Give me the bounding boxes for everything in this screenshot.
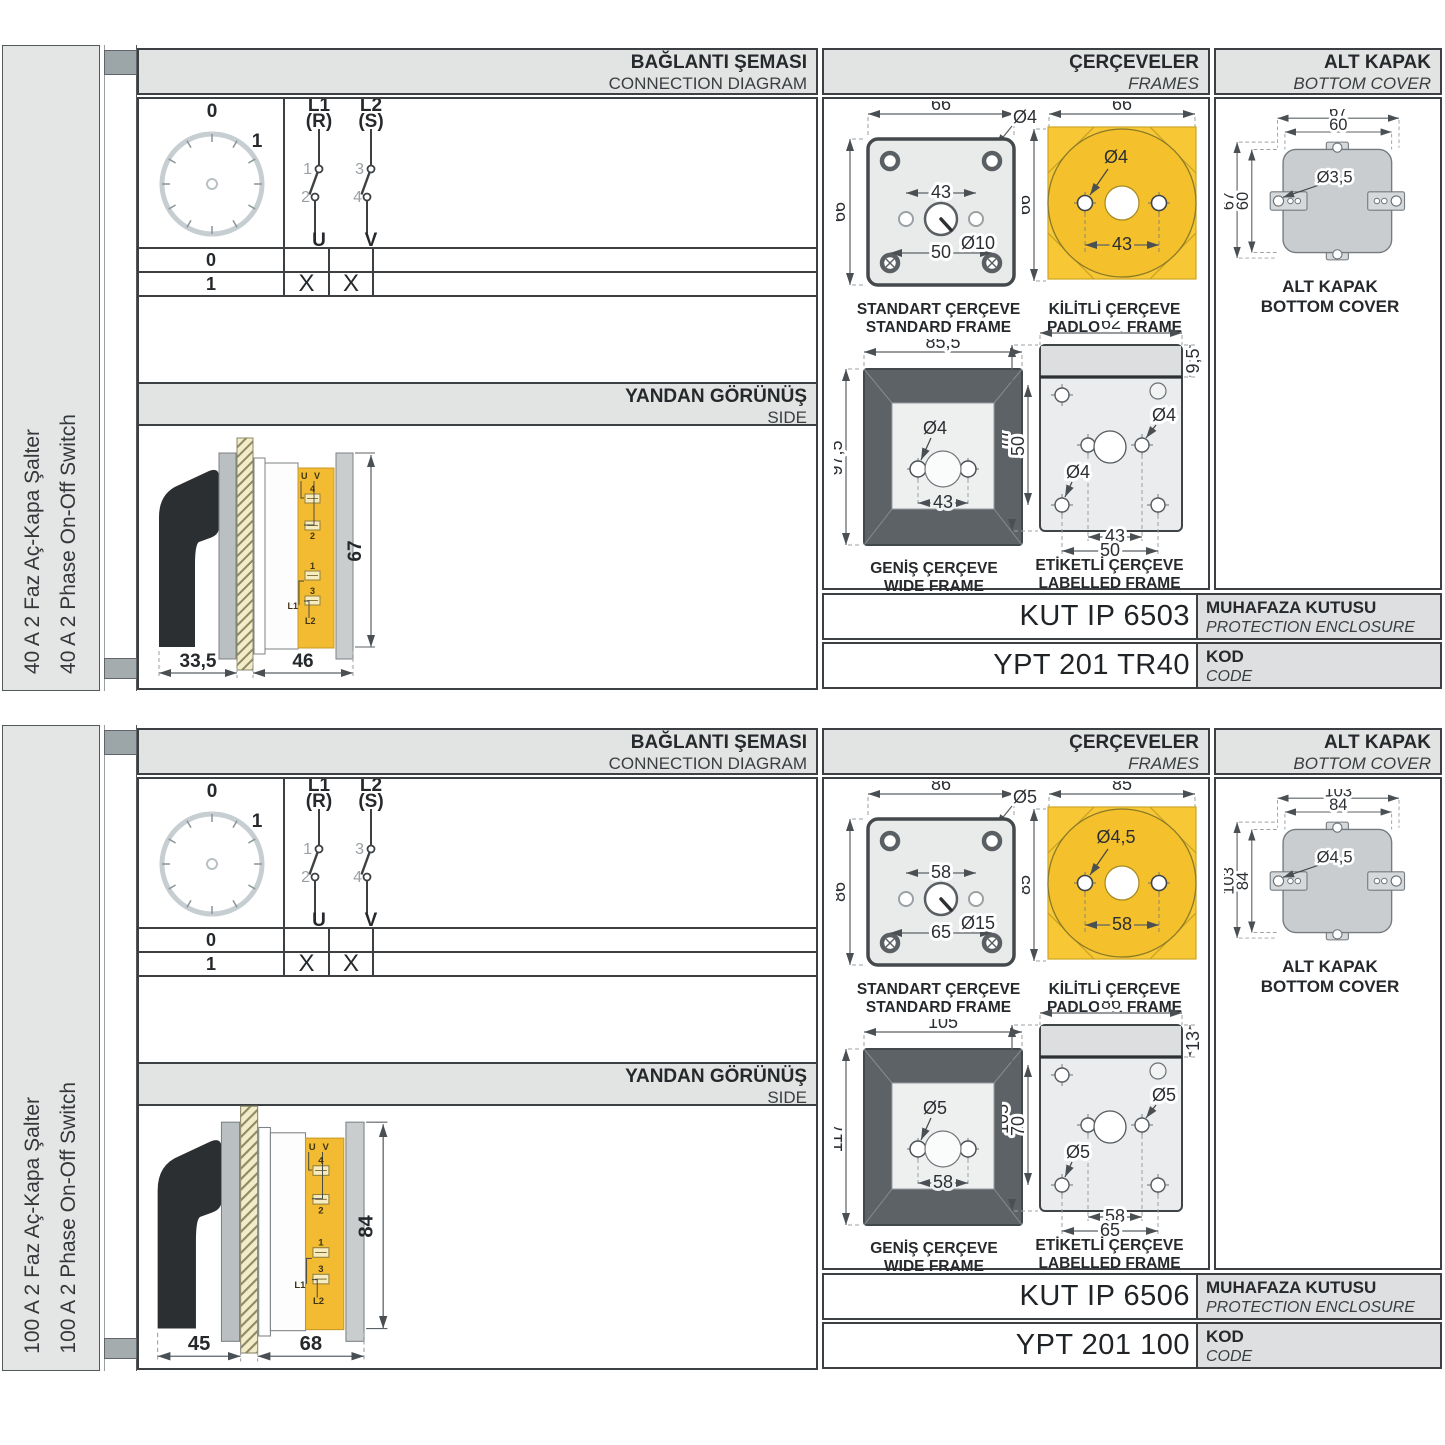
- terminal-3: 3: [310, 586, 315, 596]
- dim-height: 67: [345, 540, 366, 561]
- dim-hole-left: Ø4: [1066, 462, 1090, 482]
- table-row: 1 X X: [139, 273, 816, 297]
- dim-width: 66: [931, 101, 951, 114]
- terminal-3: 3: [318, 1264, 323, 1275]
- dial-position-1: 1: [252, 131, 263, 152]
- connection-diagram-header: BAĞLANTI ŞEMASI CONNECTION DIAGRAM: [137, 728, 818, 775]
- dim-body-depth: 46: [292, 651, 313, 672]
- labelled-frame-title: ETİKETLİ ÇERÇEVE LABELLED FRAME: [1007, 557, 1212, 594]
- bottom-cover-title: ALT KAPAK BOTTOM COVER: [1216, 277, 1444, 317]
- dim-hole-spacing: 43: [933, 492, 953, 512]
- product-name-en: 100 A 2 Phase On-Off Switch: [57, 1082, 81, 1354]
- frame-title-tr: GENİŞ ÇERÇEVE: [834, 560, 1034, 578]
- product-code: YPT 201 100: [1016, 1329, 1190, 1362]
- frame-title-en: LABELLED FRAME: [1007, 575, 1212, 593]
- dim-hole-spacing: 58: [1112, 914, 1132, 934]
- pole1-phase-label: (R): [306, 791, 332, 812]
- enclosure-code: KUT IP 6503: [1020, 600, 1190, 633]
- terminal-v: V: [314, 471, 320, 481]
- spine-tab-bottom: [104, 1338, 137, 1359]
- dial-position-0: 0: [207, 101, 218, 122]
- connection-diagram-panel: 0 1 L1 (R) L2 (S) 1 2 3 4 U V 0: [137, 97, 818, 690]
- product-label-column: 40 A 2 Faz Aç-Kapa Şalter 40 A 2 Phase O…: [2, 45, 100, 691]
- code-label-tr: KOD: [1206, 1326, 1440, 1347]
- header-title-tr: ALT KAPAK: [1216, 732, 1431, 754]
- dim-strip: 9,5: [1183, 348, 1203, 373]
- dim-height: 84: [356, 1214, 378, 1237]
- dial-position-0: 0: [207, 781, 218, 802]
- product-name-tr: 100 A 2 Faz Aç-Kapa Şalter: [21, 1097, 45, 1354]
- enclosure-code: KUT IP 6506: [1020, 1280, 1190, 1313]
- pole1-terminal-top: 1: [303, 161, 312, 178]
- bottom-cover-panel: 103 84 103 84 Ø4,5 ALT KAPAK BOTTOM COVE…: [1214, 777, 1442, 1270]
- enclosure-code-cell: KUT IP 6506: [822, 1273, 1198, 1320]
- diagram-area: 0 1 L1 (R) L2 (S) 1 2 3 4 U V: [139, 779, 816, 929]
- contacts-diagram: L1 (R) L2 (S) 1 2 3 4 U V: [285, 99, 585, 249]
- state-cell: 1: [139, 953, 285, 975]
- dim-height-inner: 84: [1233, 872, 1252, 890]
- contact-u-cell: [285, 249, 330, 271]
- pole2-terminal-bottom: 4: [353, 189, 362, 206]
- dim-center-hole: Ø10: [961, 233, 995, 253]
- standard-frame-drawing: 66 66 Ø4 43 Ø10 50: [836, 101, 1041, 299]
- empty-cell: [374, 273, 816, 295]
- dim-inner-height: 70: [1008, 1116, 1028, 1136]
- contact-u-cell: X: [285, 273, 330, 295]
- empty-cell: [374, 929, 816, 951]
- dim-hole: Ø3,5: [1317, 168, 1353, 187]
- dim-handle-depth: 45: [188, 1333, 210, 1355]
- contact-v-cell: X: [330, 273, 374, 295]
- code-label-cell: KOD CODE: [1196, 1322, 1442, 1369]
- dim-height: 97,5: [834, 440, 846, 475]
- pole1-terminal-bottom: 2: [301, 189, 310, 206]
- state-cell: 0: [139, 929, 285, 951]
- terminal-2: 2: [318, 1206, 323, 1217]
- dim-width: 85,5: [925, 339, 960, 352]
- product-code-cell: YPT 201 100: [822, 1322, 1198, 1369]
- pole2-output-label: V: [365, 910, 378, 929]
- dim-width: 85: [1112, 781, 1132, 794]
- connection-diagram-header: BAĞLANTI ŞEMASI CONNECTION DIAGRAM: [137, 48, 818, 95]
- state-cell: 1: [139, 273, 285, 295]
- binder-spine: [104, 45, 137, 691]
- frames-panel: 66 66 Ø4 43 Ø10 50 STANDART ÇERÇEVE STAN…: [822, 97, 1210, 590]
- header-title-tr: BAĞLANTI ŞEMASI: [139, 732, 807, 754]
- pole1-phase-label: (R): [306, 111, 332, 132]
- state-cell: 0: [139, 249, 285, 271]
- header-title-tr: ALT KAPAK: [1216, 52, 1431, 74]
- frame-title-tr: STANDART ÇERÇEVE: [836, 301, 1041, 319]
- cover-title-en: BOTTOM COVER: [1216, 977, 1444, 997]
- dim-width: 62: [1101, 321, 1121, 333]
- pole1-output-label: U: [312, 910, 326, 929]
- product-label-column: 100 A 2 Faz Aç-Kapa Şalter 100 A 2 Phase…: [2, 725, 100, 1371]
- labelled-frame-drawing: 86 13 105 70 Ø5 Ø5 58 65: [1002, 1001, 1207, 1241]
- switch-dial-drawing: 0 1: [139, 779, 285, 929]
- dim-hole-right: Ø4: [1152, 405, 1176, 425]
- side-view-header: YANDAN GÖRÜNÜŞ SIDE: [137, 1062, 818, 1106]
- dim-body-depth: 68: [300, 1333, 322, 1355]
- frames-header: ÇERÇEVELER FRAMES: [822, 48, 1210, 95]
- terminal-1: 1: [318, 1238, 324, 1249]
- pole2-terminal-bottom: 4: [353, 869, 362, 886]
- side-view-drawing: 84 45 68 U V 4 2 1 3 L1 L2: [147, 1103, 397, 1369]
- table-row: 1 X X: [139, 953, 816, 977]
- cover-title-tr: ALT KAPAK: [1216, 957, 1444, 977]
- dim-inner-height: 50: [1008, 436, 1028, 456]
- side-view-drawing: 67 33,5 46 U V 4 2 1 3 L1 L2: [149, 435, 384, 685]
- spine-tab-bottom: [104, 658, 137, 679]
- header-title-en: SIDE: [139, 408, 807, 428]
- dim-outer-spacing: 65: [931, 922, 951, 942]
- dim-width: 86: [931, 781, 951, 794]
- terminal-l1: L1: [287, 601, 298, 611]
- diagram-area: 0 1 L1 (R) L2 (S) 1 2 3 4 U V: [139, 99, 816, 249]
- code-label-tr: KOD: [1206, 646, 1440, 667]
- bottom-cover-title: ALT KAPAK BOTTOM COVER: [1216, 957, 1444, 997]
- enclosure-label-en: PROTECTION ENCLOSURE: [1206, 618, 1440, 638]
- switch-state-table: 0 1 X X: [139, 929, 816, 977]
- table-row: 0: [139, 249, 816, 273]
- product-code-cell: YPT 201 TR40: [822, 642, 1198, 689]
- padlock-frame-drawing: 85 85 Ø4,5 58: [1022, 781, 1207, 979]
- header-title-tr: ÇERÇEVELER: [824, 52, 1199, 74]
- dim-width: 105: [928, 1019, 958, 1032]
- contact-u-cell: [285, 929, 330, 951]
- terminal-4: 4: [318, 1156, 324, 1167]
- terminal-v: V: [323, 1142, 330, 1153]
- bottom-cover-panel: 67 60 67 60 Ø3,5 ALT KAPAK BOTTOM COVER: [1214, 97, 1442, 590]
- dim-hole: Ø5: [923, 1098, 947, 1118]
- labelled-frame-title: ETİKETLİ ÇERÇEVE LABELLED FRAME: [1007, 1237, 1212, 1274]
- dim-width-inner: 84: [1329, 795, 1347, 814]
- dim-handle-depth: 33,5: [180, 651, 217, 672]
- frames-panel: 86 86 Ø5 58 Ø15 65 STANDART ÇERÇEVE STAN…: [822, 777, 1210, 1270]
- header-title-tr: YANDAN GÖRÜNÜŞ: [139, 1066, 807, 1088]
- standard-frame-drawing: 86 86 Ø5 58 Ø15 65: [836, 781, 1041, 979]
- frame-title-en: LABELLED FRAME: [1007, 1255, 1212, 1273]
- labelled-frame-drawing: 62 9,5 77 50 Ø4 Ø4 43 50: [1002, 321, 1207, 561]
- dim-hole: Ø4: [923, 418, 947, 438]
- pole1-output-label: U: [312, 230, 326, 249]
- header-title-en: CONNECTION DIAGRAM: [139, 754, 807, 774]
- spine-tab-top: [104, 730, 137, 755]
- dim-hole-spacing: 43: [1112, 234, 1132, 254]
- terminal-4: 4: [310, 484, 315, 494]
- terminal-l2: L2: [313, 1296, 324, 1307]
- contact-v-cell: [330, 249, 374, 271]
- terminal-l2: L2: [305, 616, 316, 626]
- dim-hole-spacing: 58: [931, 862, 951, 882]
- product-name-en: 40 A 2 Phase On-Off Switch: [57, 414, 81, 674]
- bottom-cover-drawing: 67 60 67 60 Ø3,5: [1224, 109, 1436, 270]
- dial-position-1: 1: [252, 811, 263, 832]
- dial-cell: 0 1: [139, 99, 285, 249]
- binder-spine: [104, 725, 137, 1371]
- product-section-100a: 100 A 2 Faz Aç-Kapa Şalter 100 A 2 Phase…: [0, 725, 1445, 1371]
- terminal-u: U: [301, 471, 308, 481]
- header-title-en: FRAMES: [824, 74, 1199, 94]
- frame-title-tr: GENİŞ ÇERÇEVE: [834, 1240, 1034, 1258]
- enclosure-label-en: PROTECTION ENCLOSURE: [1206, 1298, 1440, 1318]
- header-title-tr: BAĞLANTI ŞEMASI: [139, 52, 807, 74]
- dim-hole-spacing: 43: [931, 182, 951, 202]
- dim-width: 86: [1101, 1001, 1121, 1013]
- table-row: 0: [139, 929, 816, 953]
- dim-hole-right: Ø5: [1152, 1085, 1176, 1105]
- product-name-tr: 40 A 2 Faz Aç-Kapa Şalter: [21, 429, 45, 674]
- dim-hole-spacing: 58: [933, 1172, 953, 1192]
- dim-height: 85: [1022, 875, 1034, 895]
- code-label-en: CODE: [1206, 1347, 1440, 1367]
- frame-title-tr: ETİKETLİ ÇERÇEVE: [1007, 557, 1212, 575]
- code-label-cell: KOD CODE: [1196, 642, 1442, 689]
- header-title-en: BOTTOM COVER: [1216, 754, 1431, 774]
- bottom-cover-drawing: 103 84 103 84 Ø4,5: [1224, 789, 1436, 950]
- dim-outer-spacing: 50: [931, 242, 951, 262]
- frames-header: ÇERÇEVELER FRAMES: [822, 728, 1210, 775]
- dim-width-inner: 60: [1329, 115, 1347, 134]
- frame-title-tr: ETİKETLİ ÇERÇEVE: [1007, 1237, 1212, 1255]
- dim-height-inner: 60: [1233, 192, 1252, 210]
- dim-hole: Ø4,5: [1096, 827, 1135, 847]
- enclosure-label-cell: MUHAFAZA KUTUSU PROTECTION ENCLOSURE: [1196, 1273, 1442, 1320]
- switch-dial-drawing: 0 1: [139, 99, 285, 249]
- dim-height: 86: [836, 882, 849, 902]
- product-section-40a: 40 A 2 Faz Aç-Kapa Şalter 40 A 2 Phase O…: [0, 45, 1445, 691]
- contact-u-cell: X: [285, 953, 330, 975]
- wide-frame-title: GENİŞ ÇERÇEVE WIDE FRAME: [834, 560, 1034, 597]
- pole1-terminal-bottom: 2: [301, 869, 310, 886]
- terminal-l1: L1: [294, 1280, 306, 1291]
- side-view-header: YANDAN GÖRÜNÜŞ SIDE: [137, 382, 818, 426]
- padlock-frame-drawing: 66 66 Ø4 43: [1022, 101, 1207, 299]
- enclosure-label-tr: MUHAFAZA KUTUSU: [1206, 1277, 1440, 1298]
- cover-title-tr: ALT KAPAK: [1216, 277, 1444, 297]
- dim-height: 117: [834, 1124, 846, 1153]
- contacts-diagram: L1 (R) L2 (S) 1 2 3 4 U V: [285, 779, 585, 929]
- pole1-terminal-top: 1: [303, 841, 312, 858]
- dim-width: 66: [1112, 101, 1132, 114]
- connection-diagram-panel: 0 1 L1 (R) L2 (S) 1 2 3 4 U V 0: [137, 777, 818, 1370]
- enclosure-code-cell: KUT IP 6503: [822, 593, 1198, 640]
- switch-state-table: 0 1 X X: [139, 249, 816, 297]
- spine-tab-top: [104, 50, 137, 75]
- terminal-1: 1: [310, 561, 315, 571]
- frame-title-tr: KİLİTLİ ÇERÇEVE: [1022, 301, 1207, 319]
- header-title-tr: ÇERÇEVELER: [824, 732, 1199, 754]
- pole2-phase-label: (S): [358, 111, 383, 132]
- enclosure-label-tr: MUHAFAZA KUTUSU: [1206, 597, 1440, 618]
- dial-cell: 0 1: [139, 779, 285, 929]
- cover-title-en: BOTTOM COVER: [1216, 297, 1444, 317]
- product-code: YPT 201 TR40: [993, 649, 1190, 682]
- terminal-u: U: [309, 1142, 316, 1153]
- empty-cell: [374, 249, 816, 271]
- terminal-2: 2: [310, 531, 315, 541]
- wide-frame-title: GENİŞ ÇERÇEVE WIDE FRAME: [834, 1240, 1034, 1277]
- pole2-phase-label: (S): [358, 791, 383, 812]
- bottom-cover-header: ALT KAPAK BOTTOM COVER: [1214, 48, 1442, 95]
- dim-hole: Ø4: [1104, 147, 1128, 167]
- enclosure-label-cell: MUHAFAZA KUTUSU PROTECTION ENCLOSURE: [1196, 593, 1442, 640]
- pole2-terminal-top: 3: [355, 841, 364, 858]
- dim-hole-left: Ø5: [1066, 1142, 1090, 1162]
- dim-strip: 13: [1183, 1031, 1203, 1051]
- header-title-en: BOTTOM COVER: [1216, 74, 1431, 94]
- header-title-en: FRAMES: [824, 754, 1199, 774]
- dim-height: 66: [1022, 195, 1034, 215]
- header-title-tr: YANDAN GÖRÜNÜŞ: [139, 386, 807, 408]
- dim-height: 66: [836, 202, 849, 222]
- bottom-cover-header: ALT KAPAK BOTTOM COVER: [1214, 728, 1442, 775]
- frame-title-tr: KİLİTLİ ÇERÇEVE: [1022, 981, 1207, 999]
- code-label-en: CODE: [1206, 667, 1440, 687]
- dim-hole: Ø4,5: [1317, 848, 1353, 867]
- contact-v-cell: [330, 929, 374, 951]
- contact-v-cell: X: [330, 953, 374, 975]
- header-title-en: CONNECTION DIAGRAM: [139, 74, 807, 94]
- pole2-output-label: V: [365, 230, 378, 249]
- frame-title-tr: STANDART ÇERÇEVE: [836, 981, 1041, 999]
- pole2-terminal-top: 3: [355, 161, 364, 178]
- dim-center-hole: Ø15: [961, 913, 995, 933]
- empty-cell: [374, 953, 816, 975]
